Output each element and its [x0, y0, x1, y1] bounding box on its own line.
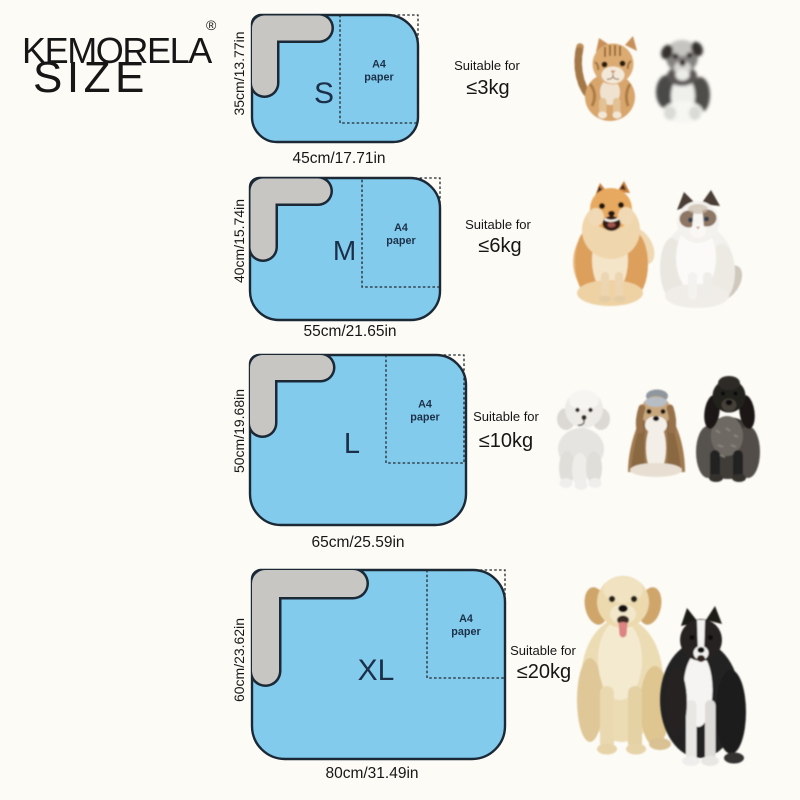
svg-text:50cm/19.68in: 50cm/19.68in [231, 389, 247, 473]
svg-text:paper: paper [451, 626, 481, 638]
svg-text:≤20kg: ≤20kg [517, 661, 571, 683]
svg-text:55cm/21.65in: 55cm/21.65in [303, 323, 396, 340]
svg-text:®: ® [206, 17, 217, 33]
svg-text:paper: paper [386, 235, 416, 247]
svg-text:S: S [314, 77, 334, 110]
svg-text:A4: A4 [394, 222, 408, 234]
svg-text:≤10kg: ≤10kg [479, 430, 533, 452]
svg-text:≤6kg: ≤6kg [478, 235, 521, 257]
svg-text:SIZE: SIZE [33, 53, 149, 102]
svg-text:L: L [344, 428, 360, 460]
svg-text:M: M [333, 235, 356, 266]
svg-text:Suitable for: Suitable for [454, 58, 520, 73]
svg-text:40cm/15.74in: 40cm/15.74in [231, 199, 247, 283]
svg-text:80cm/31.49in: 80cm/31.49in [325, 765, 418, 782]
svg-text:XL: XL [358, 654, 395, 687]
svg-text:≤3kg: ≤3kg [466, 77, 509, 99]
svg-text:60cm/23.62in: 60cm/23.62in [231, 618, 247, 702]
svg-text:45cm/17.71in: 45cm/17.71in [292, 150, 385, 167]
svg-text:paper: paper [364, 72, 394, 84]
svg-text:paper: paper [410, 412, 440, 424]
svg-text:Suitable for: Suitable for [465, 217, 531, 232]
svg-text:35cm/13.77in: 35cm/13.77in [231, 31, 247, 115]
svg-text:Suitable for: Suitable for [510, 643, 576, 658]
svg-text:65cm/25.59in: 65cm/25.59in [311, 534, 404, 551]
svg-text:A4: A4 [459, 613, 473, 625]
svg-text:Suitable for: Suitable for [473, 409, 539, 424]
svg-text:A4: A4 [418, 399, 432, 411]
svg-text:A4: A4 [372, 59, 386, 71]
